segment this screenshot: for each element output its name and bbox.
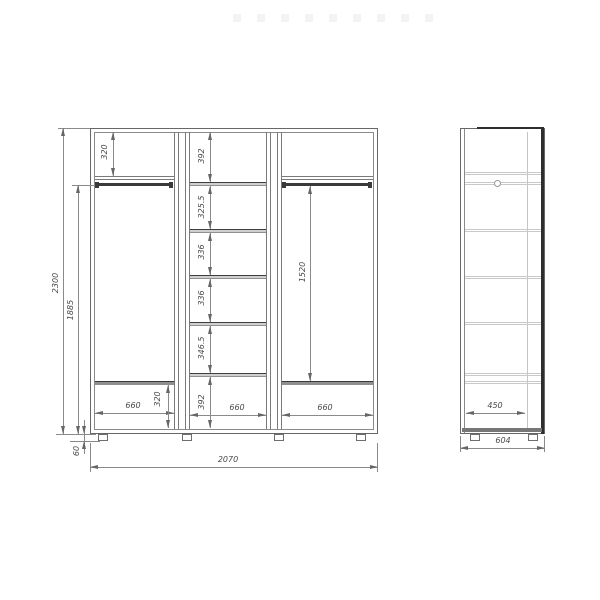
arrow-icon	[208, 314, 212, 322]
top-shelf-left	[95, 176, 174, 180]
arrow-icon	[258, 413, 266, 417]
dim-line-right-width	[282, 415, 373, 416]
watermark-dot	[329, 14, 337, 22]
arrow-icon	[537, 446, 545, 450]
arrow-icon	[61, 128, 65, 136]
side-foot	[470, 434, 480, 441]
dim-line-left-width	[95, 413, 174, 414]
front-foot	[274, 434, 284, 441]
dim-mid-compartment: 325.5	[197, 194, 207, 220]
arrow-icon	[208, 233, 212, 241]
arrow-icon	[208, 174, 212, 182]
side-bottom-panel	[462, 428, 542, 432]
rod-bracket	[169, 182, 173, 188]
dim-mid-compartment: 336	[197, 288, 207, 308]
arrow-icon	[460, 446, 468, 450]
bottom-shelf-right	[282, 381, 373, 385]
watermark-dot	[425, 14, 433, 22]
dim-interior-depth: 450	[475, 401, 515, 411]
dim-line-total-height	[63, 128, 64, 434]
side-foot	[528, 434, 538, 441]
arrow-icon	[82, 426, 86, 434]
arrow-icon	[208, 365, 212, 373]
arrow-icon	[190, 413, 198, 417]
arrow-icon	[208, 326, 212, 334]
divider-panel	[185, 132, 190, 429]
divider-panel	[174, 132, 179, 429]
arrow-icon	[466, 411, 474, 415]
side-shelf-line	[465, 229, 541, 232]
watermark-dot	[281, 14, 289, 22]
wardrobe-technical-drawing: 2300 1885 60 2070 320 392 325.5 336 336 …	[0, 0, 600, 600]
dim-hanging-height: 1520	[298, 260, 308, 284]
side-top-edge	[477, 127, 544, 129]
dim-mid-compartment: 392	[197, 392, 207, 412]
arrow-icon	[208, 132, 212, 140]
watermark-dot	[257, 14, 265, 22]
arrow-icon	[308, 373, 312, 381]
dim-left-bottom-width: 660	[113, 401, 153, 411]
arrow-icon	[208, 377, 212, 385]
dim-line-hanging	[310, 186, 311, 381]
dim-overall-depth: 604	[483, 436, 523, 446]
arrow-icon	[365, 413, 373, 417]
dim-line-interior-height	[78, 185, 79, 434]
front-foot	[356, 434, 366, 441]
arrow-icon	[370, 465, 378, 469]
dim-total-height: 2300	[51, 271, 61, 295]
arrow-icon	[76, 426, 80, 434]
dim-top-shelf-height: 320	[100, 142, 110, 162]
side-shelf-line	[465, 381, 541, 384]
arrow-icon	[111, 132, 115, 140]
watermark-dot	[305, 14, 313, 22]
watermark-dot	[233, 14, 241, 22]
middle-shelf	[190, 373, 266, 377]
front-foot	[98, 434, 108, 441]
dim-mid-bottom-width: 660	[217, 403, 257, 413]
rod-bracket	[95, 182, 99, 188]
side-shelf-line	[465, 373, 541, 376]
side-shelf-line	[465, 172, 541, 175]
watermark-dot	[401, 14, 409, 22]
front-foot	[182, 434, 192, 441]
dim-right-bottom-width: 660	[305, 403, 345, 413]
arrow-icon	[76, 185, 80, 193]
hanging-rod-left	[97, 183, 172, 186]
dim-line-overall-depth	[460, 448, 545, 449]
arrow-icon	[95, 411, 103, 415]
side-shelf-line	[465, 276, 541, 279]
dim-line-mid-width	[190, 415, 266, 416]
middle-shelf	[190, 229, 266, 233]
side-back-panel-line	[527, 132, 528, 429]
arrow-icon	[282, 413, 290, 417]
hanging-rod-right	[284, 183, 370, 186]
side-shelf-line	[465, 182, 541, 185]
rod-end-icon	[494, 180, 501, 187]
divider-panel	[266, 132, 271, 429]
watermark-dot	[377, 14, 385, 22]
dim-interior-height: 1885	[66, 298, 76, 322]
dim-mid-compartment: 392	[197, 146, 207, 166]
arrow-icon	[208, 267, 212, 275]
arrow-icon	[208, 279, 212, 287]
side-front-edge	[541, 128, 544, 434]
arrow-icon	[90, 465, 98, 469]
arrow-icon	[166, 385, 170, 393]
bottom-shelf-left	[95, 381, 174, 385]
rod-bracket	[368, 182, 372, 188]
top-shelf-right	[282, 176, 373, 180]
arrow-icon	[208, 420, 212, 428]
arrow-icon	[308, 186, 312, 194]
watermark-dot	[353, 14, 361, 22]
arrow-icon	[208, 221, 212, 229]
middle-shelf	[190, 182, 266, 186]
side-shelf-line	[465, 322, 541, 325]
dim-leg-height: 60	[72, 444, 82, 458]
dim-line-total-width	[90, 467, 378, 468]
arrow-icon	[166, 420, 170, 428]
rod-bracket	[282, 182, 286, 188]
dim-left-compartment-height: 320	[153, 389, 163, 409]
dim-mid-compartment: 336	[197, 242, 207, 262]
dim-total-width: 2070	[203, 455, 253, 465]
arrow-icon	[61, 426, 65, 434]
arrow-icon	[517, 411, 525, 415]
middle-shelf	[190, 275, 266, 279]
dim-mid-compartment: 346.5	[197, 335, 207, 361]
arrow-icon	[208, 186, 212, 194]
arrow-icon	[82, 441, 86, 449]
arrow-icon	[111, 168, 115, 176]
middle-shelf	[190, 322, 266, 326]
extension-line	[56, 434, 96, 435]
